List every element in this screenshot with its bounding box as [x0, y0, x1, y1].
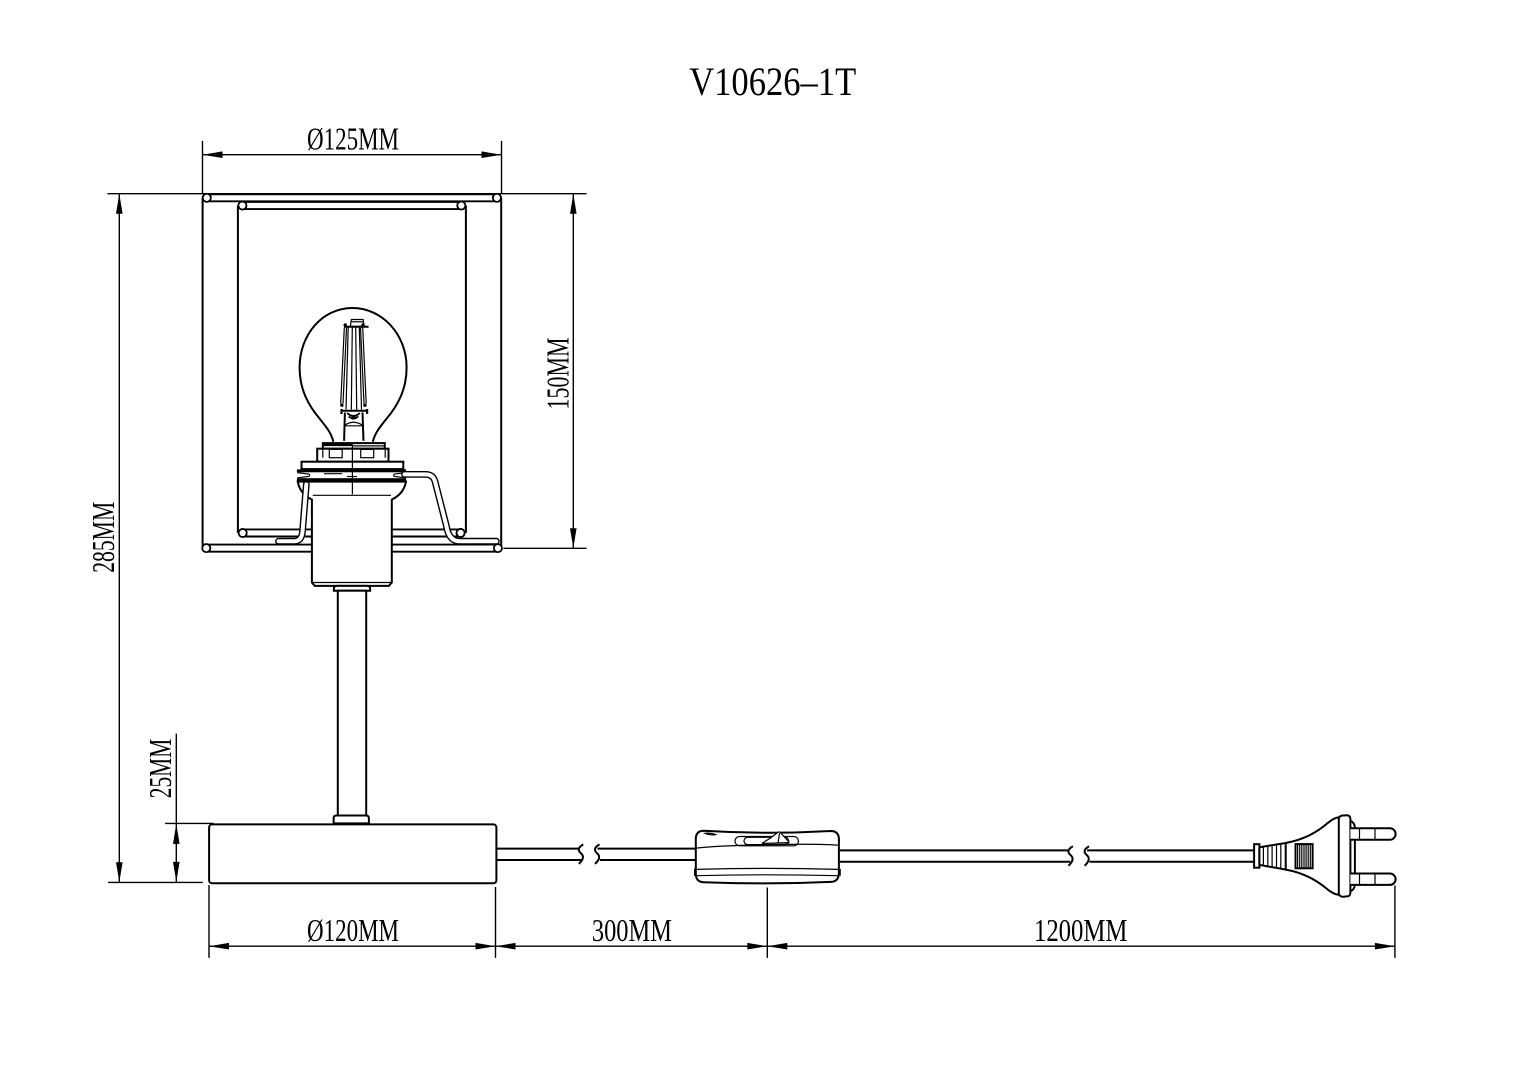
- svg-text:Ø120MM: Ø120MM: [307, 912, 399, 948]
- svg-text:25MM: 25MM: [142, 739, 178, 799]
- svg-text:1200MM: 1200MM: [1034, 912, 1128, 948]
- svg-text:150MM: 150MM: [540, 338, 576, 410]
- svg-text:300MM: 300MM: [592, 912, 672, 948]
- svg-text:V10626–1T: V10626–1T: [689, 59, 856, 104]
- svg-text:285MM: 285MM: [85, 502, 121, 573]
- svg-text:Ø125MM: Ø125MM: [307, 121, 399, 157]
